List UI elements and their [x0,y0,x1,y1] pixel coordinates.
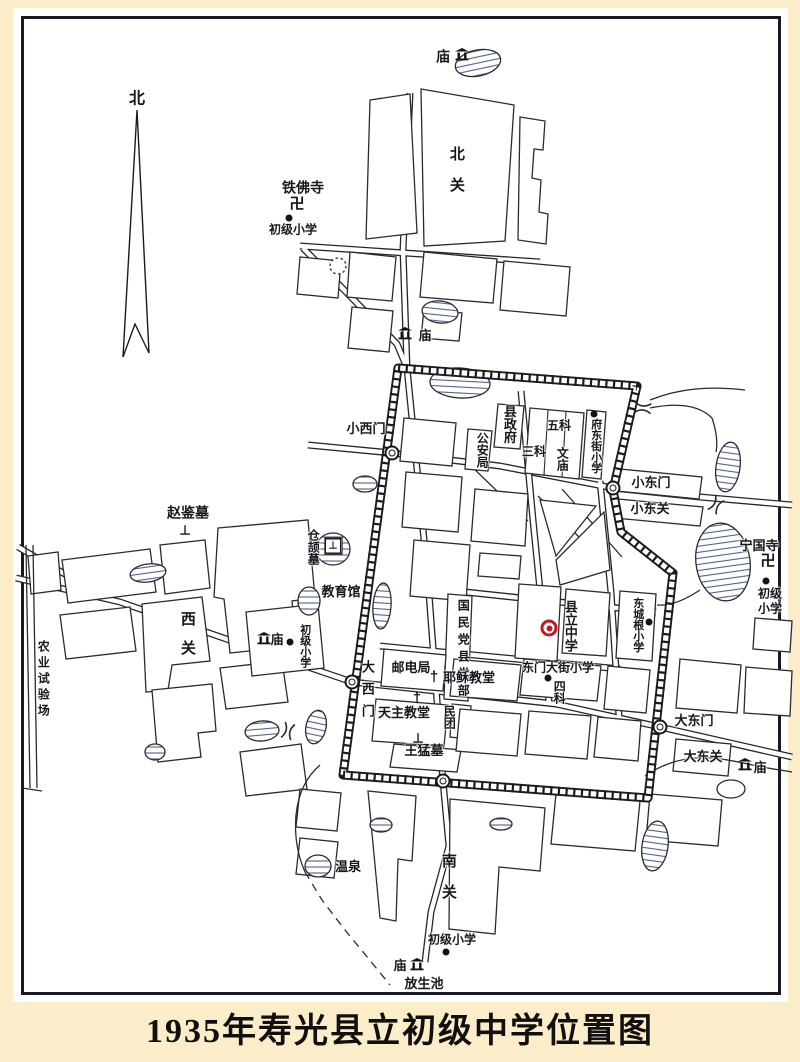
map-title: 1935年寿光县立初级中学位置图 [0,1003,800,1052]
map-page: { "title": "1935年寿光县立初级中学位置图", "colors":… [0,0,800,1062]
base-map [0,0,800,1062]
